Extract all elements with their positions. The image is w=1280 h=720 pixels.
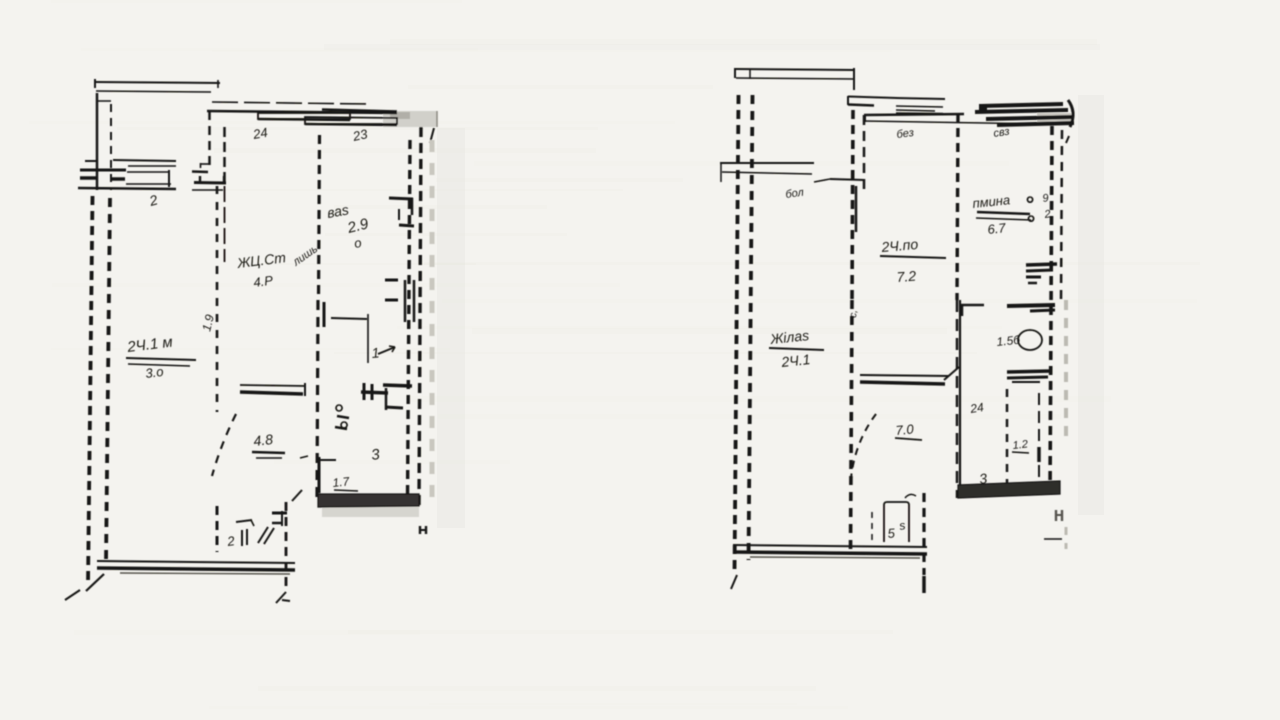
svg-text:свз: свз	[993, 126, 1011, 140]
svg-text:1: 1	[371, 344, 380, 361]
svg-text:c,: c,	[848, 310, 860, 319]
svg-text:2Ч.по: 2Ч.по	[880, 236, 919, 255]
svg-text:1.2: 1.2	[1012, 438, 1028, 452]
svg-text:без: без	[896, 127, 915, 141]
svg-text:7.2: 7.2	[896, 268, 917, 285]
svg-text:бол: бол	[785, 187, 805, 201]
svg-text:4.8: 4.8	[253, 431, 274, 449]
svg-text:1.5б: 1.5б	[996, 332, 1022, 349]
svg-text:24: 24	[968, 400, 985, 416]
svg-text:4.Р: 4.Р	[253, 273, 275, 290]
svg-text:3.о: 3.о	[145, 364, 165, 381]
svg-text:24: 24	[251, 125, 269, 142]
svg-text:2Ч.1: 2Ч.1	[780, 351, 811, 370]
svg-text:1.7: 1.7	[332, 474, 351, 490]
svg-text:7.0: 7.0	[895, 421, 915, 438]
svg-text:6.7: 6.7	[987, 220, 1007, 237]
